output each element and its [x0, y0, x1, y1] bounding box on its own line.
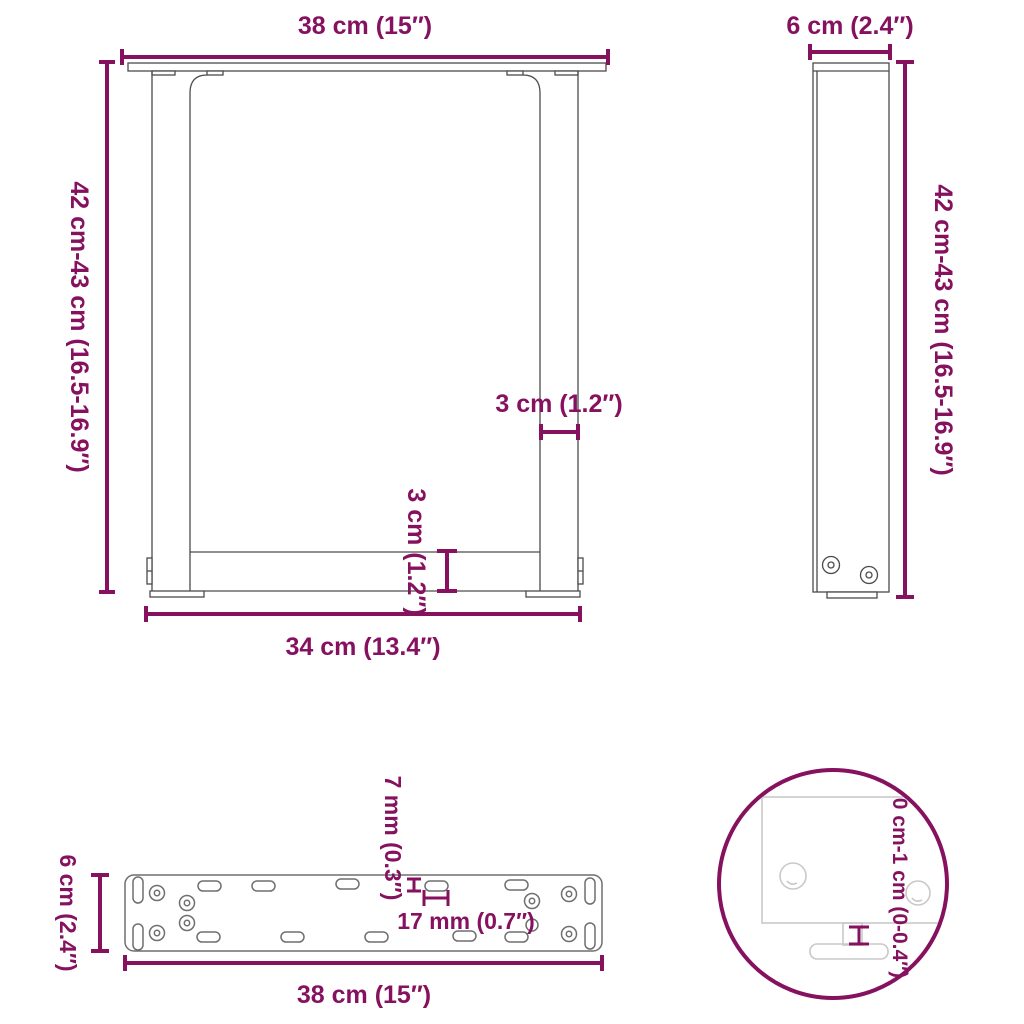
- detail-magnifier-circle: [719, 770, 947, 998]
- detail-view: 0 cm-1 cm (0-0.4″): [719, 770, 947, 998]
- side-height-dimension-line: [896, 62, 914, 597]
- front-height-dimension-line: [99, 62, 115, 592]
- front-top-dimension-label: 38 cm (15″): [298, 12, 432, 40]
- screw-hole-mark: [912, 898, 922, 901]
- front-foot-plate-left: [150, 591, 204, 597]
- front-bottom-dimension-line: [146, 606, 580, 622]
- front-leg-thickness-label: 3 cm (1.2″): [495, 390, 622, 418]
- plate-width-dimension-line: [125, 955, 602, 971]
- side-height-dimension-label: 42 cm-43 cm (16.5-16.9″): [929, 184, 957, 475]
- front-plate-tab-left: [152, 71, 175, 75]
- front-right-leg-inner-edge: [523, 75, 540, 592]
- plate-slot-width-label: 7 mm (0.3″): [380, 776, 406, 901]
- side-foot-plate: [827, 592, 877, 598]
- side-leg-body: [813, 63, 889, 592]
- screw-hole-mark: [787, 881, 797, 884]
- table-leg-dimension-diagram: 38 cm (15″) 42 cm-43 cm (16.5-16.9″) 3 c…: [0, 0, 1024, 1024]
- front-height-dimension-label: 42 cm-43 cm (16.5-16.9″): [65, 181, 93, 472]
- detail-adjust-range-dimension-line: [849, 927, 869, 944]
- detail-adjust-range-label: 0 cm-1 cm (0-0.4″): [888, 798, 911, 978]
- detail-drawing: [762, 797, 946, 959]
- front-crossbar-thickness-label: 3 cm (1.2″): [402, 488, 430, 615]
- side-depth-dimension-label: 6 cm (2.4″): [786, 12, 913, 40]
- front-left-leg-inner-edge: [190, 75, 207, 592]
- plate-width-dimension-label: 38 cm (15″): [297, 981, 431, 1009]
- plate-depth-dimension-label: 6 cm (2.4″): [55, 854, 81, 971]
- front-plate-tab-right: [555, 71, 578, 75]
- front-leg-hook-right: [507, 71, 523, 75]
- front-leg-thickness-dimension-line: [541, 424, 578, 440]
- detail-adjustable-foot-pad: [810, 944, 888, 959]
- side-view: [813, 63, 889, 598]
- plate-slot-length-label: 17 mm (0.7″): [397, 908, 535, 934]
- dimension-diagram-page: 38 cm (15″) 42 cm-43 cm (16.5-16.9″) 3 c…: [0, 0, 1024, 1024]
- front-view: [128, 63, 606, 597]
- screw-hole: [780, 863, 806, 889]
- front-top-plate: [128, 63, 606, 71]
- front-foot-plate-right: [526, 591, 580, 597]
- detail-leg-bottom: [762, 797, 946, 923]
- front-crossbar-thickness-dimension-line: [437, 551, 457, 591]
- plate-depth-dimension-line: [91, 875, 109, 951]
- front-bottom-dimension-label: 34 cm (13.4″): [285, 633, 440, 661]
- side-depth-dimension-line: [810, 44, 890, 60]
- front-leg-hook-left: [207, 71, 223, 75]
